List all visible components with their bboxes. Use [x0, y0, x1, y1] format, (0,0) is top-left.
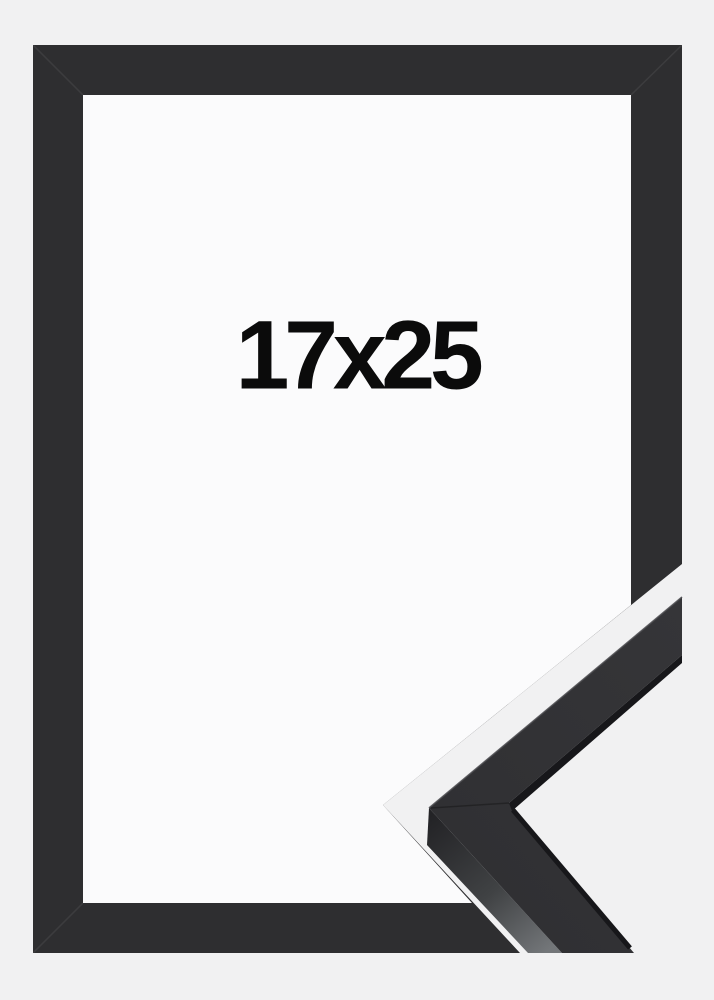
frame-illustration: [0, 0, 714, 1000]
size-label: 17x25: [235, 307, 478, 404]
product-photo: 17x25: [0, 0, 714, 1000]
